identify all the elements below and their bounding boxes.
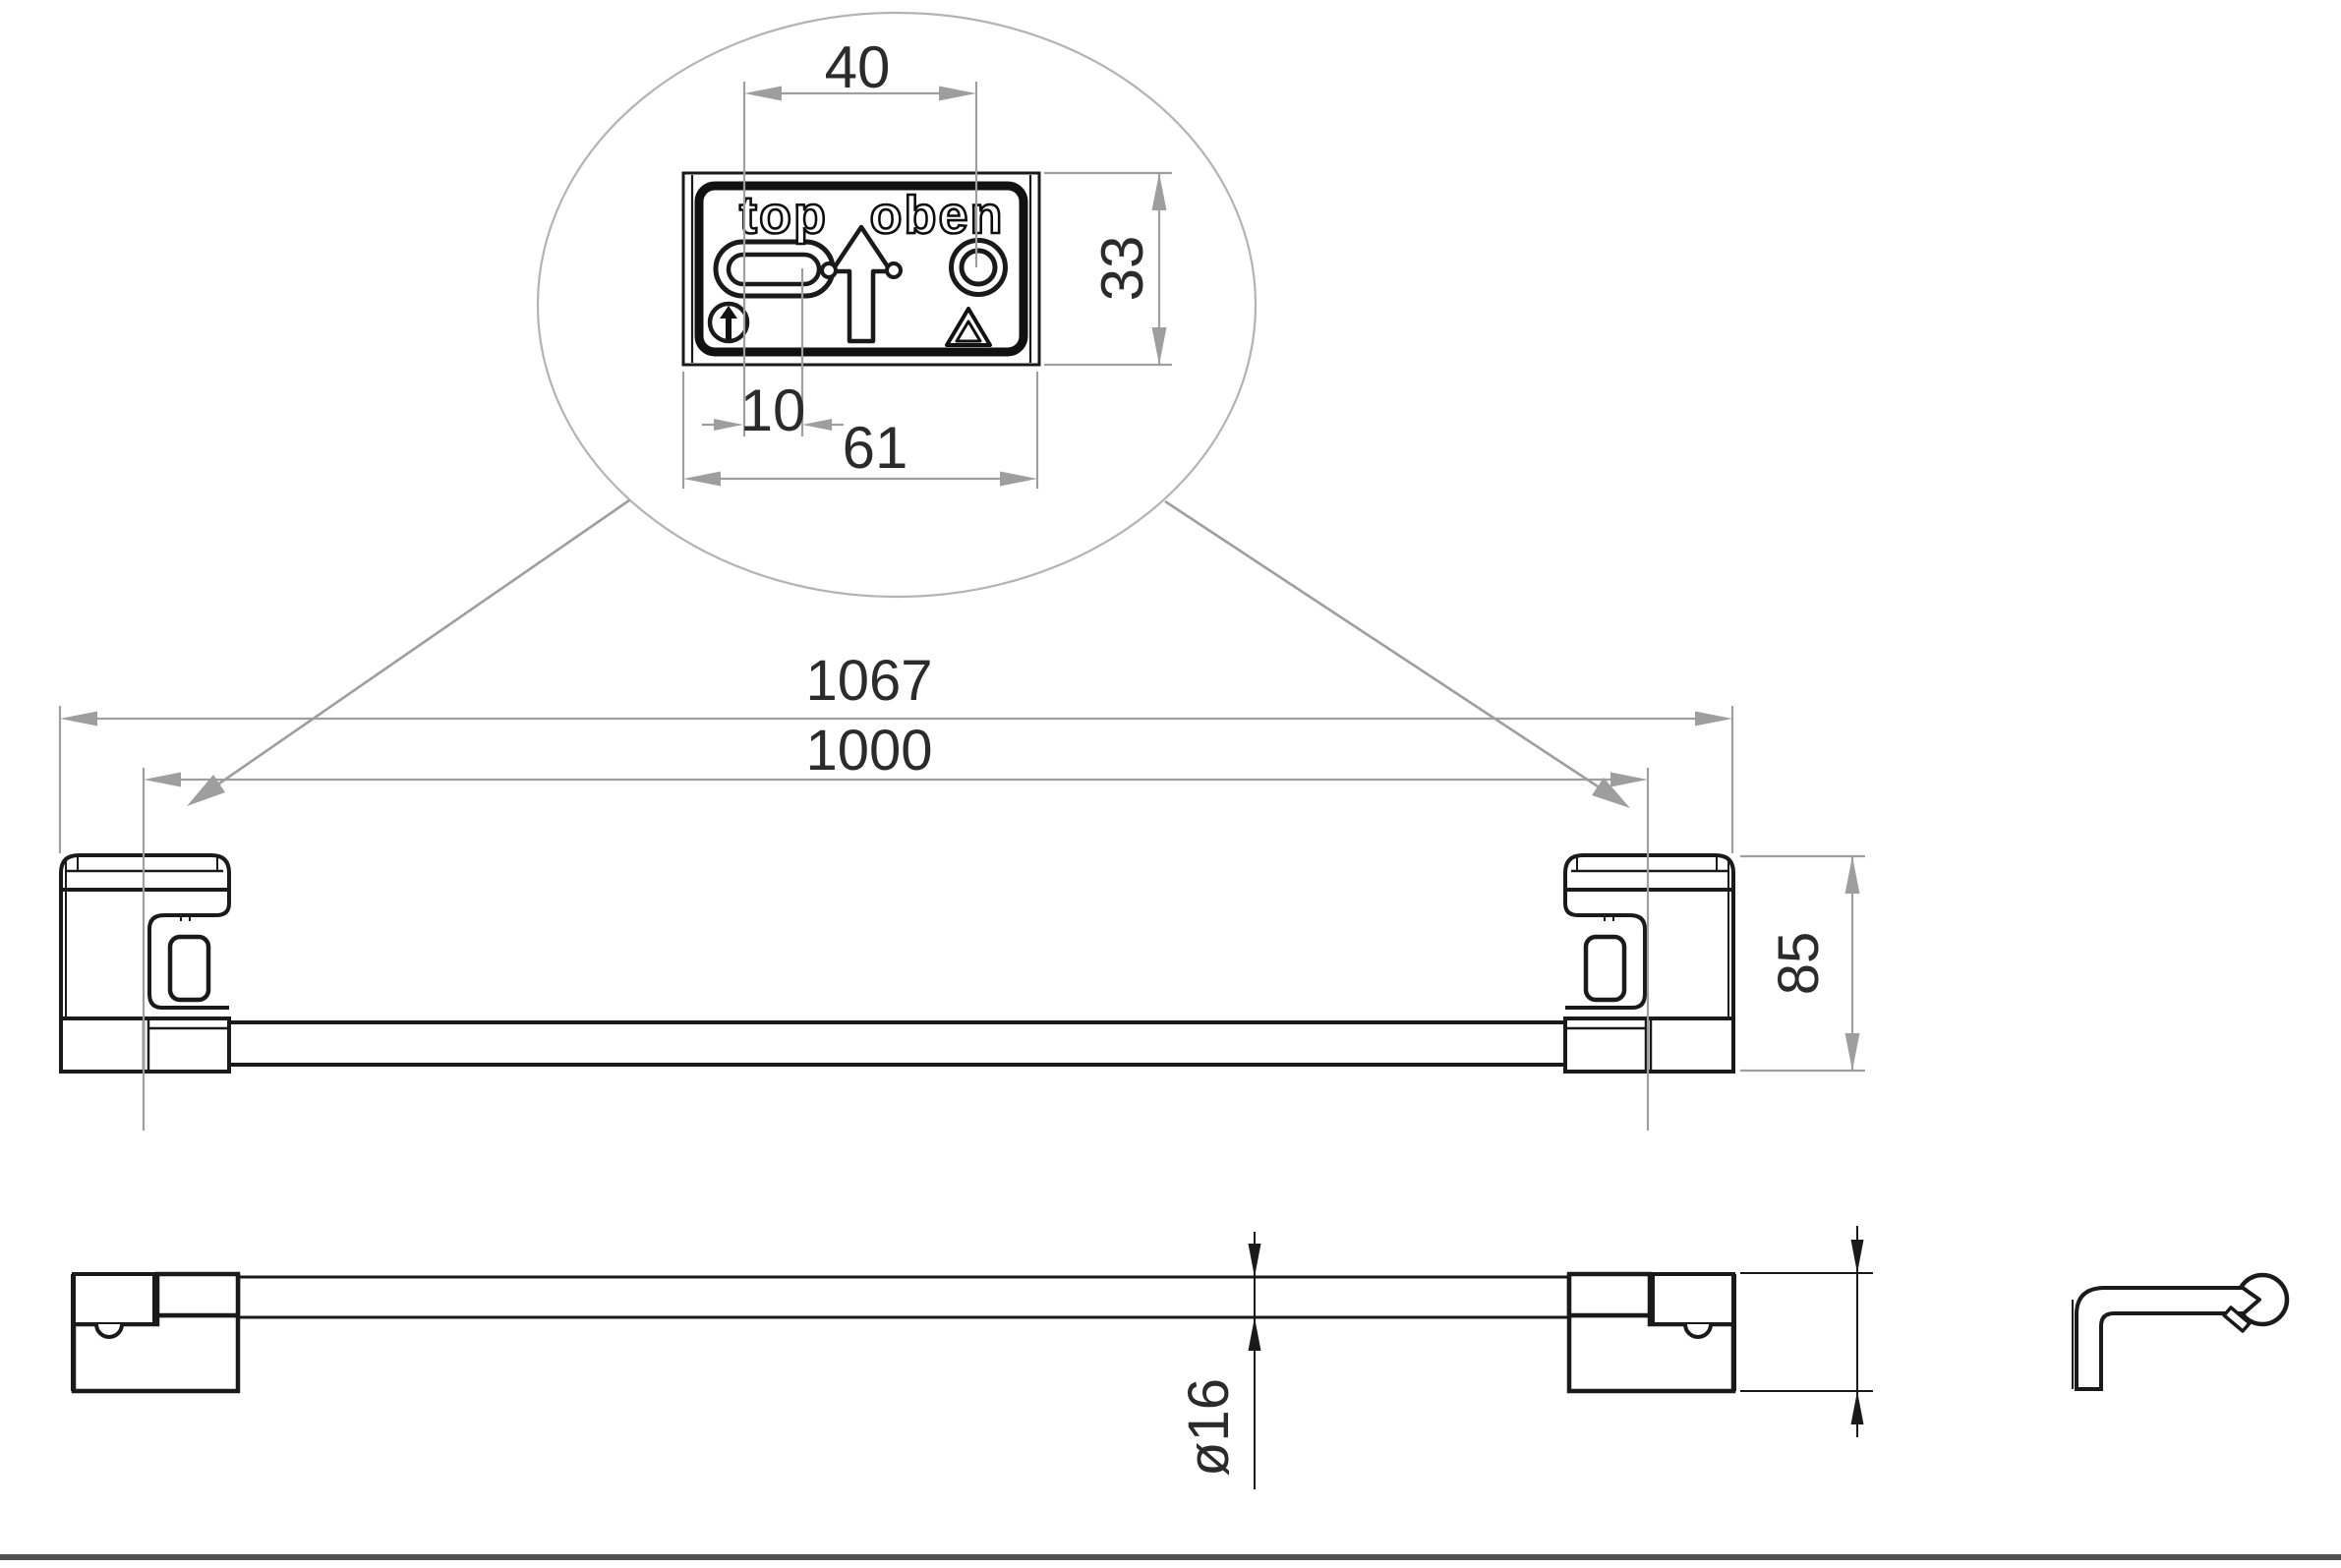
side-view [2073, 1275, 2287, 1389]
slot-hole-inner [729, 255, 819, 284]
bracket-cap [61, 855, 229, 890]
dim-diameter-16 [1249, 1232, 1261, 1489]
plate-label-top: top [739, 186, 828, 245]
bracket-hook-notch [170, 937, 208, 1000]
arrow-right-pivot-dot [887, 263, 901, 277]
bottom-bar [238, 1277, 1569, 1317]
front-bracket [61, 855, 229, 1072]
bottom-bracket-plate [74, 1274, 154, 1324]
bottom-bracket-right [1569, 1274, 1735, 1391]
leader-line-right [1165, 501, 1598, 786]
dim-bracket-depth [1740, 1226, 1873, 1437]
round-hole-inner [962, 251, 995, 284]
dim-1000-label: 1000 [805, 719, 932, 783]
leader-line-left [219, 500, 629, 784]
dim-1067-label: 1067 [805, 649, 932, 713]
front-bar [229, 1022, 1565, 1065]
towel-bar-technical-drawing: top oben 40 33 10 [0, 0, 2341, 1568]
plate-label-oben: oben [870, 186, 1005, 245]
dim-diameter-label: ø16 [1177, 1378, 1241, 1477]
front-bracket-right [1565, 855, 1733, 1072]
dim-40-label: 40 [825, 34, 891, 100]
technical-drawing-page: top oben 40 33 10 [0, 0, 2341, 1568]
arrow-left-pivot-dot [822, 263, 836, 277]
bottom-view: ø16 [72, 1226, 1873, 1489]
front-view: 1067 1000 85 [60, 649, 1865, 1131]
dim-61-label: 61 [843, 415, 908, 481]
bottom-bracket-arm [157, 1274, 238, 1315]
bracket-foot [61, 1018, 229, 1072]
dim-85-label: 85 [1767, 932, 1831, 996]
side-wall-profile [2077, 1288, 2114, 1389]
bottom-bracket [72, 1274, 238, 1391]
dim-33-label: 33 [1089, 236, 1155, 302]
dim-1000 [144, 768, 1648, 1131]
bottom-bracket-screw-arc [96, 1324, 122, 1337]
dim-10-label: 10 [740, 377, 806, 443]
